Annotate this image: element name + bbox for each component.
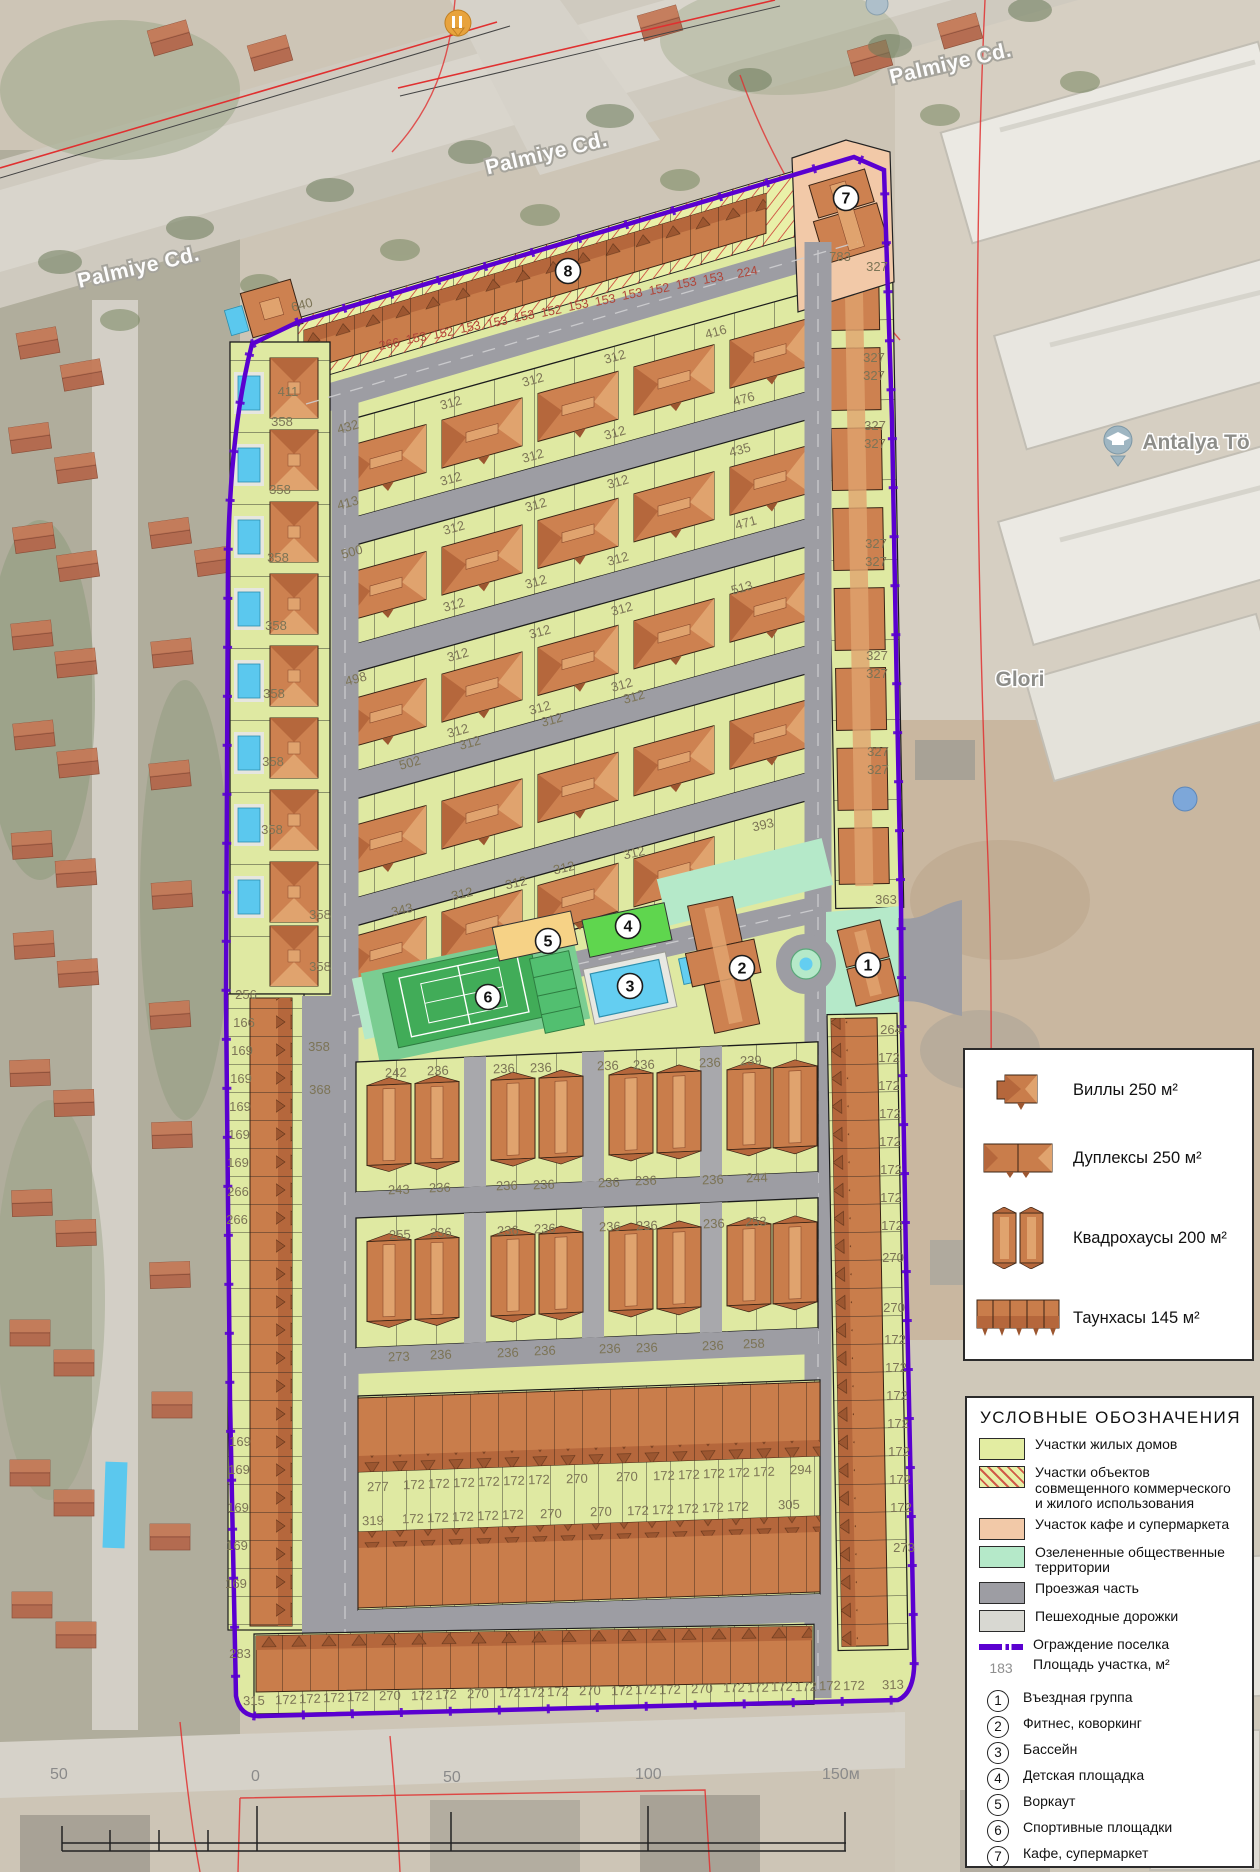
svg-text:7: 7 <box>842 191 851 208</box>
legend-swatch <box>979 1546 1025 1568</box>
svg-text:236: 236 <box>496 1178 518 1194</box>
scale-label-100: 100 <box>635 1766 662 1784</box>
legend-swatch <box>979 1582 1025 1604</box>
svg-text:363: 363 <box>875 892 897 907</box>
legend-numbered-label: Спортивные площадки <box>1023 1820 1172 1836</box>
svg-text:172: 172 <box>452 1509 474 1524</box>
svg-text:236: 236 <box>534 1343 556 1359</box>
svg-text:1: 1 <box>864 958 873 975</box>
svg-text:172: 172 <box>771 1679 793 1694</box>
svg-text:169: 169 <box>229 1434 251 1449</box>
svg-text:169: 169 <box>225 1576 247 1591</box>
svg-text:172: 172 <box>427 1510 449 1525</box>
svg-text:172: 172 <box>275 1692 297 1707</box>
svg-text:270: 270 <box>882 1250 904 1265</box>
svg-text:172: 172 <box>728 1465 750 1480</box>
svg-text:172: 172 <box>403 1477 425 1492</box>
legend-numbered-item: 3 Бассейн <box>987 1742 1242 1764</box>
svg-text:266: 266 <box>226 1212 248 1227</box>
svg-text:243: 243 <box>388 1182 410 1198</box>
svg-text:172: 172 <box>477 1508 499 1523</box>
legend-item: Участки объектов совмещенного коммерческ… <box>979 1465 1242 1512</box>
svg-text:264: 264 <box>880 1022 902 1037</box>
scale-label-50-left: 50 <box>50 1766 68 1784</box>
svg-text:358: 358 <box>261 822 283 837</box>
svg-text:172: 172 <box>884 1332 906 1347</box>
svg-text:358: 358 <box>309 959 331 974</box>
svg-text:313: 313 <box>882 1677 904 1692</box>
legend-item: Проезжая часть <box>979 1581 1242 1604</box>
svg-text:4: 4 <box>624 919 633 936</box>
svg-text:172: 172 <box>878 1050 900 1065</box>
svg-text:172: 172 <box>659 1682 681 1697</box>
svg-text:236: 236 <box>530 1060 552 1076</box>
svg-text:358: 358 <box>265 618 287 633</box>
svg-text:258: 258 <box>743 1336 765 1352</box>
svg-text:236: 236 <box>430 1225 452 1241</box>
svg-text:172: 172 <box>478 1474 500 1489</box>
legend-numbered-label: Фитнес, коворкинг <box>1023 1716 1142 1732</box>
legend-swatch <box>979 1518 1025 1540</box>
svg-text:358: 358 <box>263 686 285 701</box>
villa-label: Виллы 250 м² <box>1073 1081 1178 1100</box>
master-plan <box>221 140 962 1716</box>
svg-text:172: 172 <box>299 1691 321 1706</box>
svg-text:172: 172 <box>753 1464 775 1479</box>
svg-text:172: 172 <box>888 1444 910 1459</box>
svg-text:172: 172 <box>881 1218 903 1233</box>
svg-text:236: 236 <box>703 1216 725 1232</box>
svg-text:172: 172 <box>703 1466 725 1481</box>
svg-text:5: 5 <box>544 934 553 951</box>
legend-item: 183 Площадь участка, м² <box>979 1657 1242 1678</box>
svg-text:172: 172 <box>627 1503 649 1518</box>
legend-number-badge: 2 <box>987 1716 1009 1738</box>
svg-text:236: 236 <box>599 1341 621 1357</box>
legend-item-label: Участок кафе и супермаркета <box>1035 1517 1229 1533</box>
svg-text:270: 270 <box>540 1506 562 1521</box>
svg-text:327: 327 <box>863 350 885 365</box>
scale-label-150m: 150м <box>822 1766 860 1784</box>
svg-text:172: 172 <box>702 1500 724 1515</box>
svg-text:327: 327 <box>864 436 886 451</box>
legend-townhouse-row: Таунхасы 145 м² <box>975 1298 1242 1338</box>
legend-numbered-item: 7 Кафе, супермаркет <box>987 1846 1242 1868</box>
svg-text:169: 169 <box>229 1099 251 1114</box>
svg-text:172: 172 <box>678 1467 700 1482</box>
svg-text:172: 172 <box>727 1499 749 1514</box>
legend-symbols: УСЛОВНЫЕ ОБОЗНАЧЕНИЯ Участки жилых домов… <box>965 1396 1254 1868</box>
svg-text:270: 270 <box>566 1471 588 1486</box>
townhouse-label: Таунхасы 145 м² <box>1073 1309 1200 1328</box>
legend-numbered-item: 1 Въездная группа <box>987 1690 1242 1712</box>
legend-swatch <box>979 1610 1025 1632</box>
svg-text:172: 172 <box>503 1473 525 1488</box>
svg-text:236: 236 <box>497 1223 519 1239</box>
svg-text:236: 236 <box>534 1221 556 1237</box>
legend-duplex-row: Дуплексы 250 м² <box>975 1140 1242 1178</box>
svg-text:Antalya Tö: Antalya Tö <box>1142 431 1249 454</box>
svg-text:172: 172 <box>887 1416 909 1431</box>
svg-text:236: 236 <box>533 1177 555 1193</box>
legend-quadro-row: Квадрохаусы 200 м² <box>975 1207 1242 1269</box>
svg-text:3: 3 <box>626 979 635 996</box>
svg-text:358: 358 <box>308 1039 330 1054</box>
legend-item-label: Ограждение поселка <box>1033 1637 1169 1653</box>
legend-item-label: Участки объектов совмещенного коммерческ… <box>1035 1465 1231 1512</box>
svg-text:172: 172 <box>879 1134 901 1149</box>
svg-text:Glori: Glori <box>995 668 1044 691</box>
legend-numbered-label: Воркаут <box>1023 1794 1075 1810</box>
svg-text:172: 172 <box>879 1106 901 1121</box>
legend-swatch: 183 <box>979 1658 1023 1678</box>
svg-text:236: 236 <box>427 1063 449 1079</box>
svg-text:172: 172 <box>453 1475 475 1490</box>
legend-item: Ограждение поселка <box>979 1637 1242 1653</box>
svg-text:294: 294 <box>790 1462 812 1477</box>
svg-text:169: 169 <box>227 1500 249 1515</box>
svg-text:169: 169 <box>228 1127 250 1142</box>
legend-number-badge: 4 <box>987 1768 1009 1790</box>
svg-text:236: 236 <box>597 1058 619 1074</box>
legend-item-label: Проезжая часть <box>1035 1581 1139 1597</box>
svg-text:169: 169 <box>230 1071 252 1086</box>
svg-text:270: 270 <box>467 1686 489 1701</box>
svg-text:169: 169 <box>227 1155 249 1170</box>
legend-number-badge: 1 <box>987 1690 1009 1712</box>
svg-text:6: 6 <box>484 990 493 1007</box>
svg-text:172: 172 <box>880 1162 902 1177</box>
svg-text:327: 327 <box>866 666 888 681</box>
legend-numbered-item: 4 Детская площадка <box>987 1768 1242 1790</box>
svg-text:172: 172 <box>428 1476 450 1491</box>
place-pin-bottom[interactable] <box>1173 787 1197 811</box>
svg-text:236: 236 <box>636 1340 658 1356</box>
legend-number-badge: 5 <box>987 1794 1009 1816</box>
legend-item: Участки жилых домов <box>979 1437 1242 1460</box>
svg-text:172: 172 <box>677 1501 699 1516</box>
svg-text:236: 236 <box>702 1338 724 1354</box>
svg-text:315: 315 <box>243 1693 265 1708</box>
svg-text:172: 172 <box>723 1680 745 1695</box>
svg-text:2: 2 <box>738 961 747 978</box>
quadro-rows <box>356 1042 818 1374</box>
svg-text:172: 172 <box>411 1688 433 1703</box>
legend-building-types: Виллы 250 м² Дуплексы 250 м² <box>963 1048 1254 1361</box>
svg-text:244: 244 <box>746 1170 768 1186</box>
svg-text:172: 172 <box>653 1468 675 1483</box>
legend-number-badge: 6 <box>987 1820 1009 1842</box>
svg-text:172: 172 <box>502 1507 524 1522</box>
legend-numbered-label: Детская площадка <box>1023 1768 1144 1784</box>
svg-text:273: 273 <box>893 1540 915 1555</box>
svg-text:172: 172 <box>611 1683 633 1698</box>
legend-item-label: Пешеходные дорожки <box>1035 1609 1178 1625</box>
svg-text:236: 236 <box>699 1055 721 1071</box>
svg-text:327: 327 <box>865 554 887 569</box>
legend-swatch <box>979 1466 1025 1488</box>
svg-text:305: 305 <box>778 1497 800 1512</box>
legend-numbered-label: Кафе, супермаркет <box>1023 1846 1148 1862</box>
svg-text:270: 270 <box>616 1469 638 1484</box>
legend-numbered-label: Бассейн <box>1023 1742 1077 1758</box>
villa-icon <box>975 1071 1061 1111</box>
legend-numbered-item: 5 Воркаут <box>987 1794 1242 1816</box>
svg-text:169: 169 <box>226 1538 248 1553</box>
svg-text:239: 239 <box>740 1053 762 1069</box>
legend-swatch <box>979 1644 1023 1650</box>
svg-text:236: 236 <box>599 1219 621 1235</box>
townhouse-mid-block <box>358 1380 820 1638</box>
svg-text:169: 169 <box>228 1462 250 1477</box>
svg-text:172: 172 <box>878 1078 900 1093</box>
svg-text:172: 172 <box>547 1684 569 1699</box>
svg-text:327: 327 <box>865 536 887 551</box>
svg-text:172: 172 <box>347 1689 369 1704</box>
svg-text:8: 8 <box>564 264 573 281</box>
svg-text:172: 172 <box>880 1190 902 1205</box>
svg-text:358: 358 <box>269 482 291 497</box>
legend-numbered-list: 1 Въездная группа 2 Фитнес, коворкинг 3 … <box>979 1690 1242 1872</box>
scale-label-0: 0 <box>251 1768 260 1786</box>
svg-text:327: 327 <box>867 762 889 777</box>
svg-text:327: 327 <box>866 648 888 663</box>
svg-text:358: 358 <box>271 414 293 429</box>
legend-swatch <box>979 1438 1025 1460</box>
svg-text:172: 172 <box>402 1511 424 1526</box>
legend-numbered-item: 6 Спортивные площадки <box>987 1820 1242 1842</box>
svg-text:273: 273 <box>388 1349 410 1365</box>
svg-text:236: 236 <box>633 1057 655 1073</box>
svg-text:172: 172 <box>523 1685 545 1700</box>
svg-text:236: 236 <box>497 1345 519 1361</box>
svg-text:270: 270 <box>379 1688 401 1703</box>
svg-text:358: 358 <box>309 907 331 922</box>
legend-item-label: Озелененные общественные территории <box>1035 1545 1225 1576</box>
legend-numbered-item: 2 Фитнес, коворкинг <box>987 1716 1242 1738</box>
svg-text:172: 172 <box>435 1687 457 1702</box>
site-plan-screenshot: 2661531521531531531521531531531521531532… <box>0 0 1260 1872</box>
svg-text:319: 319 <box>362 1513 384 1528</box>
svg-text:172: 172 <box>843 1678 865 1693</box>
svg-text:172: 172 <box>499 1685 521 1700</box>
svg-text:172: 172 <box>819 1678 841 1693</box>
restaurant-pin[interactable] <box>445 10 471 36</box>
svg-text:236: 236 <box>493 1061 515 1077</box>
svg-text:236: 236 <box>429 1180 451 1196</box>
svg-text:172: 172 <box>747 1680 769 1695</box>
svg-text:256: 256 <box>235 987 257 1002</box>
svg-text:327: 327 <box>866 259 888 274</box>
legend-number-badge: 3 <box>987 1742 1009 1764</box>
svg-text:255: 255 <box>389 1227 411 1243</box>
svg-text:236: 236 <box>430 1347 452 1363</box>
legend-item-label: Площадь участка, м² <box>1033 1657 1170 1673</box>
svg-text:172: 172 <box>885 1360 907 1375</box>
svg-text:236: 236 <box>702 1172 724 1188</box>
svg-text:277: 277 <box>367 1479 389 1494</box>
svg-text:270: 270 <box>579 1683 601 1698</box>
svg-text:270: 270 <box>691 1681 713 1696</box>
svg-text:327: 327 <box>864 418 886 433</box>
svg-text:236: 236 <box>636 1218 658 1234</box>
quadro-icon <box>975 1207 1061 1269</box>
legend-item: Озелененные общественные территории <box>979 1545 1242 1576</box>
svg-text:358: 358 <box>267 550 289 565</box>
svg-text:172: 172 <box>889 1472 911 1487</box>
svg-text:166: 166 <box>233 1015 255 1030</box>
svg-text:172: 172 <box>528 1472 550 1487</box>
legend-swatch-list: Участки жилых домов Участки объектов сов… <box>979 1437 1242 1683</box>
townhouse-icon <box>975 1298 1061 1338</box>
svg-text:172: 172 <box>323 1690 345 1705</box>
legend-number-badge: 7 <box>987 1846 1009 1868</box>
svg-text:368: 368 <box>309 1082 331 1097</box>
scale-label-50: 50 <box>443 1769 461 1787</box>
svg-text:327: 327 <box>867 744 889 759</box>
svg-text:172: 172 <box>635 1682 657 1697</box>
svg-text:236: 236 <box>635 1173 657 1189</box>
svg-text:172: 172 <box>886 1388 908 1403</box>
svg-text:172: 172 <box>795 1679 817 1694</box>
west-villa-column <box>221 279 330 994</box>
duplex-icon <box>975 1140 1061 1178</box>
svg-text:236: 236 <box>598 1175 620 1191</box>
svg-text:411: 411 <box>278 384 299 399</box>
legend-item: Пешеходные дорожки <box>979 1609 1242 1632</box>
svg-text:169: 169 <box>231 1043 253 1058</box>
svg-text:242: 242 <box>385 1065 407 1081</box>
legend-numbered-label: Въездная группа <box>1023 1690 1133 1706</box>
legend-villa-row: Виллы 250 м² <box>975 1071 1242 1111</box>
legend-title: УСЛОВНЫЕ ОБОЗНАЧЕНИЯ <box>979 1408 1242 1428</box>
duplex-label: Дуплексы 250 м² <box>1073 1149 1202 1168</box>
svg-text:327: 327 <box>863 368 885 383</box>
svg-text:783: 783 <box>829 249 851 264</box>
svg-text:358: 358 <box>262 754 284 769</box>
legend-item: Участок кафе и супермаркета <box>979 1517 1242 1540</box>
svg-text:253: 253 <box>745 1214 767 1230</box>
svg-text:266: 266 <box>227 1184 249 1199</box>
quadro-label: Квадрохаусы 200 м² <box>1073 1229 1227 1248</box>
svg-text:283: 283 <box>229 1646 251 1661</box>
legend-item-label: Участки жилых домов <box>1035 1437 1177 1453</box>
svg-text:270: 270 <box>883 1300 905 1315</box>
svg-text:172: 172 <box>652 1502 674 1517</box>
svg-text:172: 172 <box>890 1500 912 1515</box>
svg-text:270: 270 <box>590 1504 612 1519</box>
